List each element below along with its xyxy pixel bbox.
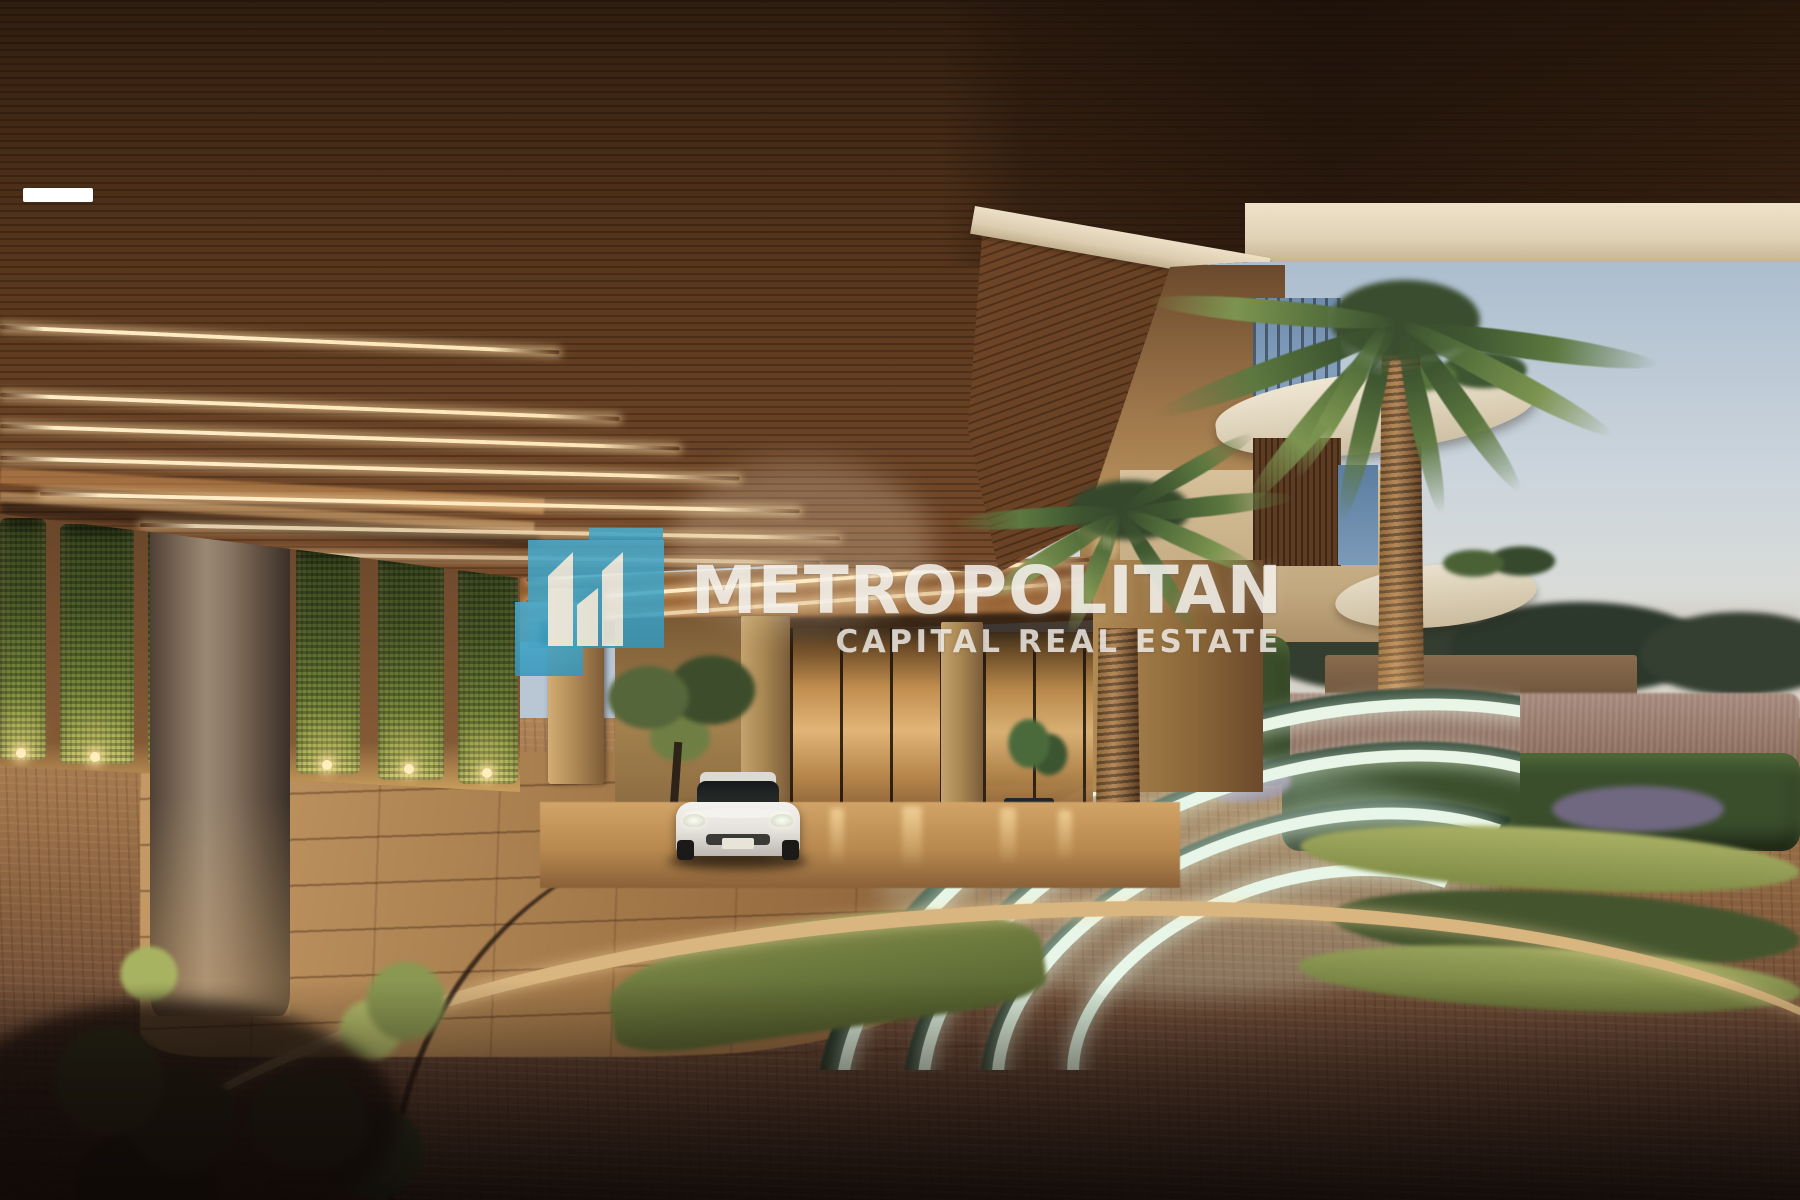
white-bar-artifact	[23, 188, 93, 202]
property-photo: METROPOLITAN CAPITAL REAL ESTATE	[0, 0, 1800, 1200]
watermark-brand-name: METROPOLITAN	[691, 562, 1283, 620]
metropolitan-watermark: METROPOLITAN CAPITAL REAL ESTATE	[0, 0, 1800, 1200]
watermark-tagline: CAPITAL REAL ESTATE	[690, 624, 1282, 660]
